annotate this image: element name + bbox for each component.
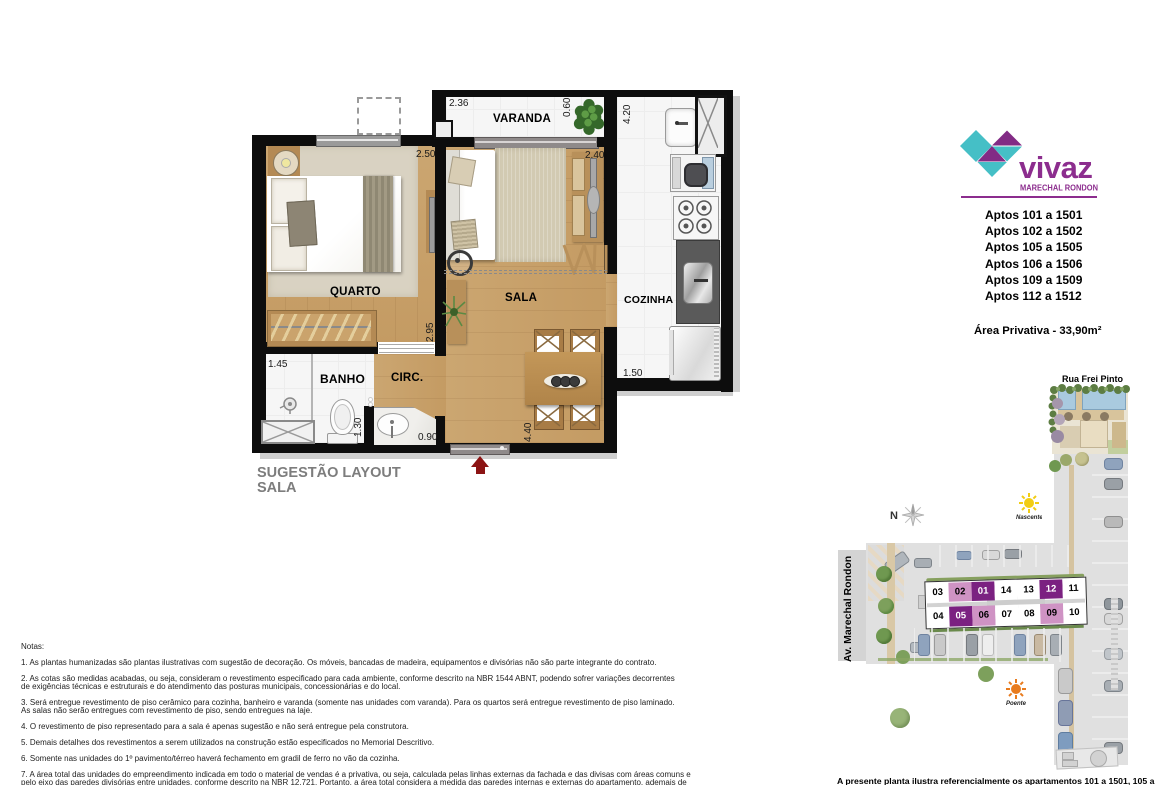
svg-text:N: N: [890, 510, 898, 522]
svg-text:Nascente: Nascente: [1016, 515, 1042, 521]
svg-text:MARECHAL RONDON: MARECHAL RONDON: [1020, 183, 1098, 193]
svg-text:vivaz: vivaz: [1019, 150, 1092, 185]
svg-text:Poente: Poente: [1006, 701, 1027, 707]
